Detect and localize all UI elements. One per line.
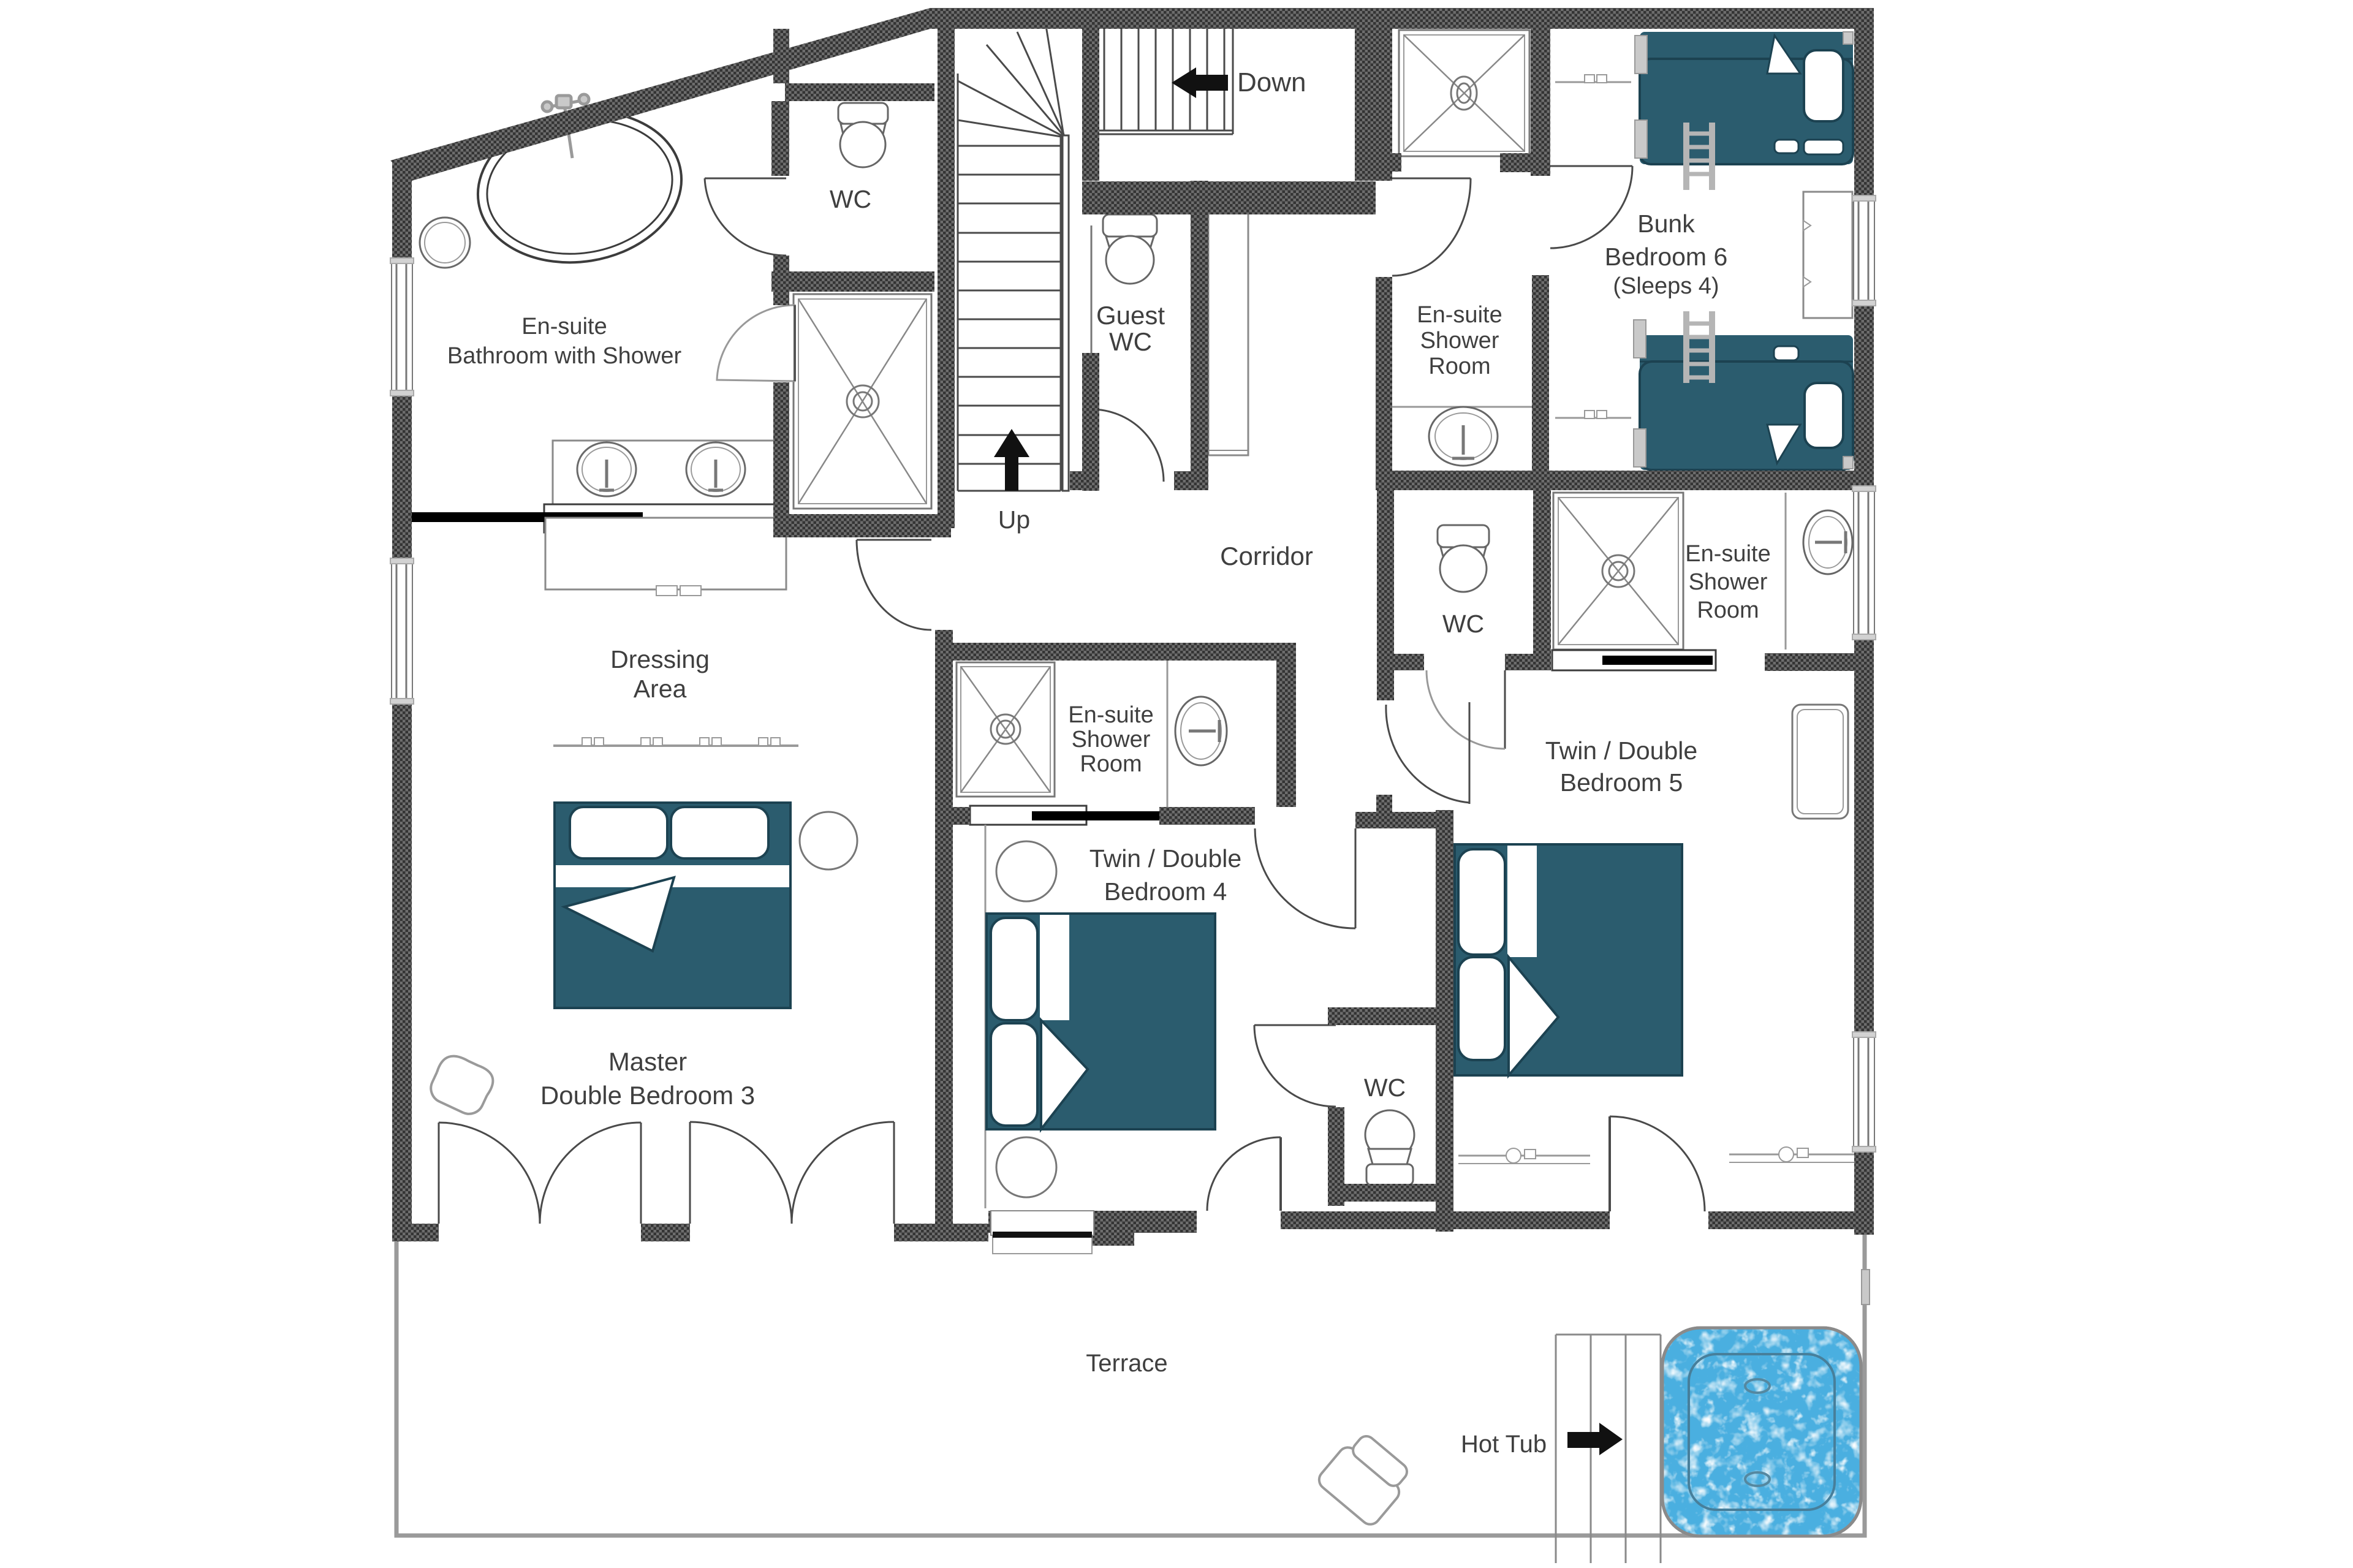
svg-text:Bedroom 4: Bedroom 4 [1104,877,1227,906]
svg-text:Dressing: Dressing [610,645,710,673]
svg-text:Room: Room [1697,597,1759,623]
svg-text:Bathroom with Shower: Bathroom with Shower [447,343,682,369]
svg-text:Hot Tub: Hot Tub [1461,1431,1547,1458]
svg-text:En-suite: En-suite [521,314,607,339]
svg-text:Area: Area [634,675,687,703]
svg-text:Guest: Guest [1096,301,1165,330]
svg-text:Twin / Double: Twin / Double [1089,844,1241,873]
svg-text:WC: WC [1364,1074,1406,1102]
svg-text:WC: WC [1109,327,1152,356]
svg-text:Master: Master [608,1047,687,1076]
svg-text:Room: Room [1080,751,1142,777]
svg-text:Down: Down [1237,67,1306,97]
svg-text:Twin / Double: Twin / Double [1545,737,1697,765]
svg-text:Bedroom 5: Bedroom 5 [1560,768,1683,797]
svg-text:WC: WC [1442,610,1484,638]
svg-text:Terrace: Terrace [1086,1350,1167,1377]
svg-text:Room: Room [1428,354,1490,379]
svg-text:Corridor: Corridor [1220,542,1313,570]
svg-text:Bedroom 6: Bedroom 6 [1605,243,1728,271]
svg-text:En-suite: En-suite [1417,302,1502,328]
svg-text:(Sleeps 4): (Sleeps 4) [1613,273,1719,299]
svg-text:Bunk: Bunk [1637,210,1695,238]
svg-text:Double Bedroom 3: Double Bedroom 3 [540,1081,755,1110]
svg-text:WC: WC [830,185,871,213]
svg-text:En-suite: En-suite [1685,541,1770,567]
svg-text:Shower: Shower [1420,328,1499,354]
svg-text:Shower: Shower [1072,727,1151,752]
svg-text:En-suite: En-suite [1068,702,1153,728]
svg-text:Up: Up [998,506,1030,534]
svg-text:Shower: Shower [1689,569,1768,595]
